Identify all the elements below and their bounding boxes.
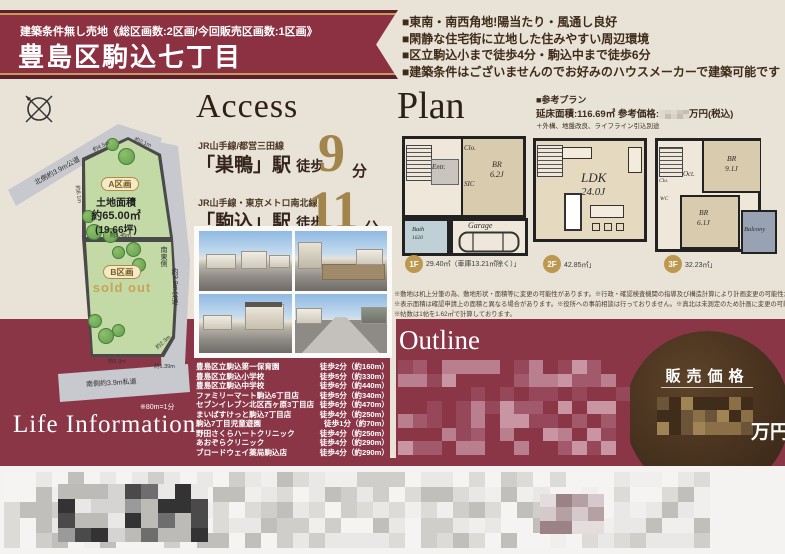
floor-badge-1f: 1F [405,255,423,273]
minutes-unit: 分 [352,160,367,181]
life-item: ブロードウェイ薬局駒込店徒歩4分（約290m） [196,448,389,458]
life-item: 豊島区立駒込第一保育園徒歩2分（約160m） [196,362,389,372]
plot-a-badge: A区画 [101,177,138,191]
life-information-title: Life Information [13,411,196,439]
station-name: 「巣鴨」駅 [196,155,291,176]
stairs [406,145,432,181]
outline-title: Outline [399,325,480,356]
price-label: 販売価格 [625,365,785,386]
life-item: 野田さくらハートクリニック徒歩4分（約250m） [196,429,389,439]
room-size-bath: 1620 [412,235,423,241]
room-label-bath: Bath [412,226,424,233]
reference-plan-box: ■参考プラン 延床面積:116.69㎡ 参考価格:万円(税込) ＋外構、地盤改良… [529,90,731,128]
disclaimer-line: ※敷地は机上分筆の為、敷地形状・面積等に変更の可能性があります。※行政・確認検査… [394,290,784,300]
room-label-br2: BR [699,208,708,217]
room-label-wc: WC [660,196,668,202]
room-label-garage: Garage [468,221,492,230]
floor-plan-3f: BR 9.1J Oct. BR 6.1J Clo. WC Balcony [655,138,779,260]
price-circle: 販売価格 万円 [625,331,785,466]
plan-title: Plan [397,84,465,128]
life-item: あおぞらクリニック徒歩4分（約290m） [196,438,389,448]
life-item: セブンイレブン北区西ヶ原3丁目店徒歩6分（約470m） [196,400,389,410]
compass-icon [22,92,56,126]
reference-plan-note: ＋外構、地盤改良、ライフライン引込別途 [536,120,724,130]
life-information-list: 豊島区立駒込第一保育園徒歩2分（約160m） 豊島区立駒込小学校徒歩5分（約33… [196,362,389,457]
price-blur-mosaic [657,397,753,435]
floor-plan-2f: LDK 24.0J [533,138,649,244]
tree-icon [112,246,125,259]
site-photo [295,294,388,354]
life-item: まいばすけっと駒込7丁目店徒歩4分（約250m） [196,410,389,420]
room-label-clo: Clo. [659,178,668,184]
highlights: ■東南・南西角地!陽当たり・風通し良好 ■閑静な住宅街に立地した住みやすい周辺環… [402,14,780,80]
room-size-br2: 6.1J [697,218,710,227]
reference-price-blur [659,110,689,119]
floor-area-2f: 42.85㎡」 [564,260,596,270]
room-label-ldk: LDK [581,170,606,186]
room-size-br1: 9.1J [725,164,738,173]
footer-logo-blur-mosaic [58,484,208,542]
footer-accent-blur-mosaic [540,494,604,534]
total-floor-area: 延床面積:116.69㎡ 参考価格: [536,109,659,120]
disclaimer-line: ※表示面積は確認申請上の面積と異なる場合があります。※役所への事前相談は行ってお… [394,300,784,310]
site-photo [199,231,292,291]
floor-badge-2f: 2F [543,255,561,273]
life-item: 駒込7丁目児童遊園徒歩1分（約70m） [196,419,389,429]
outline-blur-mosaic [398,360,630,455]
highlight-item: ■東南・南西角地!陽当たり・風通し良好 [402,14,780,31]
dim-label: 約1.39m [154,362,175,370]
floor-plan-1f: Clo. Entr. SIC BR 6.2J Bath 1620 Garage [402,136,528,258]
disclaimer-line: ※帖数は1帖を1.62㎡で計算しております。 [394,310,784,320]
life-item: ファミリーマート駒込6丁目店徒歩5分（約340m） [196,391,389,401]
stairs [537,145,563,177]
plan-disclaimers: ※敷地は机上分筆の為、敷地形状・面積等に変更の可能性があります。※行政・確認検査… [394,290,784,320]
room-label-entr: Entr. [432,163,445,171]
sold-out-label: sold out [86,280,158,295]
room-label-br1: BR [727,154,736,163]
dim-label: 約5.3m [108,357,126,365]
header-ribbon: 建築条件無し売地《総区画数:2区画/今回販売区画数:1区画》 豊島区駒込七丁目 [0,10,398,79]
site-plan: A区画 土地面積 約65.00㎡ (19.66坪) B区画 sold out 北… [8,86,192,444]
reference-plan-heading: ■参考プラン [536,93,724,106]
highlight-item: ■建築条件はございませんのでお好みのハウスメーカーで建築可能です [402,64,780,81]
highlight-item: ■区立駒込小まで徒歩4分・駒込中まで徒歩6分 [402,47,780,64]
southeast-road-label: 約3.8m公道 [169,268,179,305]
tree-icon [112,324,125,337]
sofa [562,147,592,159]
site-photo [199,294,292,354]
room-label-br: BR [492,160,502,169]
reference-price-unit: 万円(税込) [689,109,733,120]
floor-area-3f: 32.23㎡」 [685,260,717,270]
site-photo [295,231,388,291]
room-size-ldk: 24.0J [581,186,605,198]
tree-icon [126,242,141,257]
page-title: 豊島区駒込七丁目 [18,37,242,74]
room-label-clo: Clo. [464,144,476,152]
floor-badge-3f: 3F [664,255,682,273]
tree-icon [88,314,102,328]
kitchen [564,193,582,231]
room-label-sic: SIC [464,180,475,188]
photo-grid [194,226,392,358]
southeast-dir-label: 南東側 [158,246,168,267]
walk-minutes: 9 [318,122,345,184]
car-icon [458,231,520,253]
real-estate-flyer: 販売価格 万円 建築条件無し売地《総区画数:2区画/今回販売区画数:1区画》 豊… [0,0,785,554]
plot-b-badge: B区画 [103,265,140,279]
floor-area-1f: 29.40㎡（車庫13.21㎡除く）」 [426,259,521,269]
tree-icon [118,148,135,165]
dim-label: 約5.45m [110,231,131,239]
room-label-oct: Oct. [683,170,695,178]
price-unit: 万円 [751,417,785,444]
stairs [659,147,683,177]
life-item: 豊島区立駒込小学校徒歩5分（約330m） [196,372,389,382]
room-label-balcony: Balcony [744,226,765,233]
price-underline [661,387,753,388]
dining-table [590,205,624,218]
life-item: 豊島区立駒込中学校徒歩6分（約440m） [196,381,389,391]
access-title: Access [196,88,298,126]
highlight-item: ■閑静な住宅街に立地した住みやすい周辺環境 [402,31,780,48]
room-size-br: 6.2J [490,170,504,179]
footer [0,466,785,554]
